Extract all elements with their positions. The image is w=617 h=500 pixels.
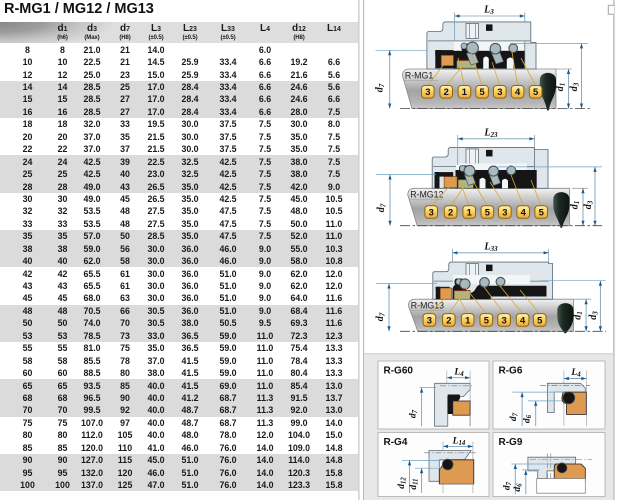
svg-text:5: 5 — [485, 206, 490, 217]
svg-text:R-G6: R-G6 — [499, 366, 523, 377]
svg-text:3: 3 — [427, 314, 432, 325]
svg-text:L33: L33 — [483, 242, 498, 254]
svg-text:5: 5 — [479, 86, 484, 97]
svg-text:1: 1 — [465, 314, 470, 325]
svg-text:3: 3 — [425, 86, 430, 97]
svg-text:d7: d7 — [375, 83, 387, 92]
svg-text:4: 4 — [515, 86, 521, 97]
svg-text:d1: d1 — [573, 311, 585, 320]
svg-text:d3: d3 — [583, 200, 595, 209]
svg-text:d1: d1 — [570, 201, 582, 210]
svg-text:5: 5 — [484, 314, 489, 325]
svg-text:d3: d3 — [588, 311, 600, 320]
svg-text:5: 5 — [533, 86, 538, 97]
svg-text:3: 3 — [497, 86, 502, 97]
svg-text:5: 5 — [539, 206, 544, 217]
svg-text:R-G9: R-G9 — [499, 437, 523, 448]
svg-text:5: 5 — [537, 314, 542, 325]
svg-text:3: 3 — [502, 206, 507, 217]
svg-text:3: 3 — [429, 206, 434, 217]
svg-text:2: 2 — [448, 206, 453, 217]
svg-text:d1: d1 — [555, 83, 567, 92]
svg-text:R-MG1: R-MG1 — [405, 70, 433, 80]
svg-text:R-G60: R-G60 — [384, 366, 414, 377]
svg-text:2: 2 — [444, 86, 449, 97]
svg-text:L23: L23 — [483, 128, 498, 140]
svg-text:d3: d3 — [569, 82, 581, 91]
svg-text:3: 3 — [501, 314, 506, 325]
svg-text:4: 4 — [520, 314, 526, 325]
svg-text:1: 1 — [467, 206, 472, 217]
svg-text:4: 4 — [521, 206, 527, 217]
svg-text:1: 1 — [462, 86, 467, 97]
svg-text:R-G4: R-G4 — [384, 437, 408, 448]
svg-text:d7: d7 — [376, 203, 388, 212]
svg-text:L3: L3 — [483, 4, 494, 16]
svg-text:R-MG13: R-MG13 — [411, 301, 444, 311]
svg-text:d7: d7 — [375, 312, 387, 321]
svg-text:2: 2 — [446, 314, 451, 325]
